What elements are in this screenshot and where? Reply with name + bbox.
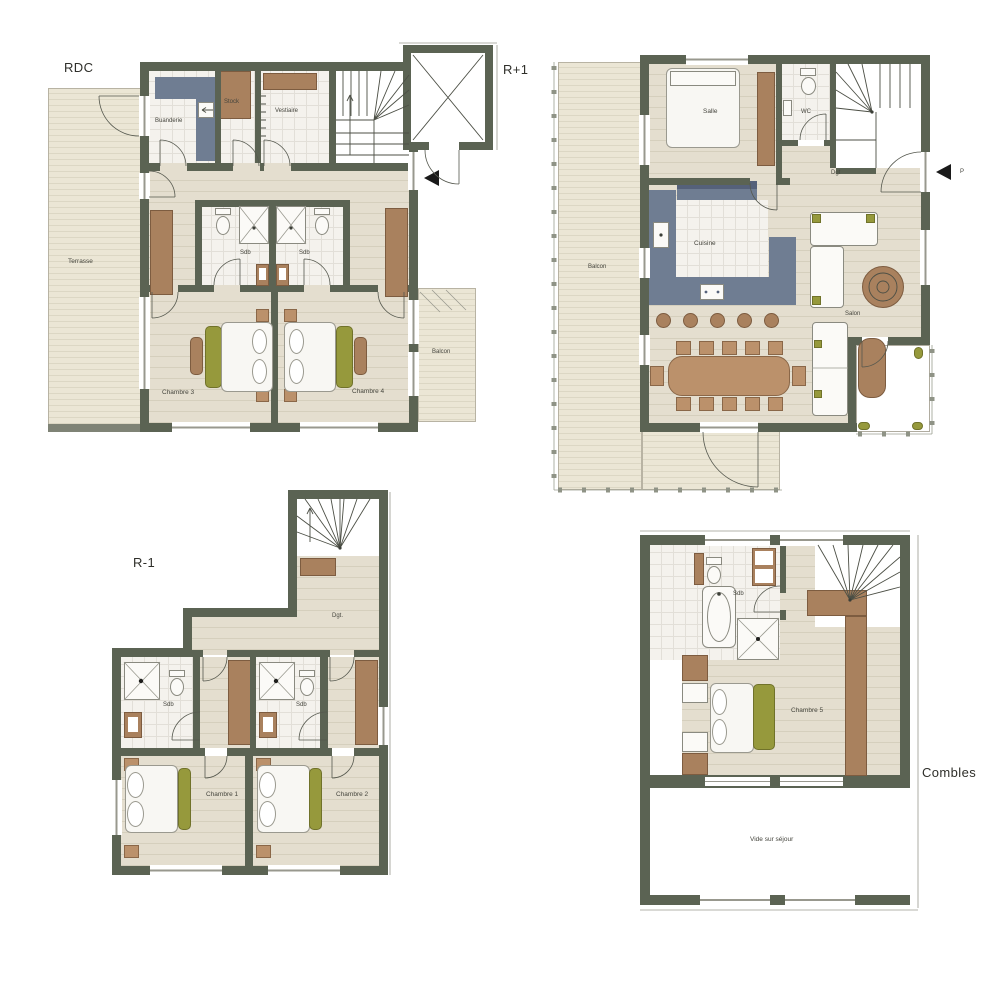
wall bbox=[329, 62, 336, 163]
r1-cuisine-floor bbox=[676, 200, 768, 277]
armchair bbox=[354, 337, 367, 375]
room-label-balcon-r1: Balcon bbox=[588, 264, 606, 270]
wall bbox=[215, 62, 221, 163]
door-opening bbox=[139, 173, 150, 199]
window-opening bbox=[705, 534, 770, 546]
entrance-arrow-icon bbox=[936, 164, 951, 180]
room-label-chambre2: Chambre 2 bbox=[336, 791, 368, 798]
door-opening bbox=[639, 115, 650, 165]
wall bbox=[140, 62, 418, 71]
room-label-vestiaire: Vestiaire bbox=[275, 108, 298, 114]
pillow bbox=[670, 71, 736, 86]
wall bbox=[640, 55, 649, 432]
rm1-stairs-floor bbox=[297, 499, 379, 556]
stair-banister bbox=[807, 590, 867, 616]
room-label-chambre3: Chambre 3 bbox=[162, 389, 194, 396]
room-label-wc: WC bbox=[801, 109, 811, 115]
elevator-cab bbox=[411, 53, 485, 142]
wall bbox=[245, 756, 253, 866]
wardrobe bbox=[757, 72, 775, 166]
door-opening bbox=[160, 163, 187, 171]
wardrobe bbox=[228, 660, 252, 745]
cooktop bbox=[700, 284, 724, 300]
bar-stool bbox=[737, 313, 752, 328]
room-label-sdb-combles: Sdb bbox=[733, 591, 744, 597]
cabinet bbox=[694, 553, 704, 585]
door-opening bbox=[700, 422, 758, 433]
stair-landing bbox=[300, 558, 336, 576]
sofa-cushion bbox=[812, 296, 821, 305]
cabinet bbox=[682, 753, 708, 775]
wardrobe bbox=[355, 660, 378, 745]
nightstand bbox=[682, 732, 708, 752]
sink bbox=[128, 717, 138, 732]
dining-chair bbox=[768, 341, 783, 355]
pillow bbox=[712, 689, 727, 715]
toilet bbox=[801, 77, 816, 95]
dining-chair bbox=[676, 397, 691, 411]
dining-chair bbox=[650, 366, 664, 386]
ottoman bbox=[858, 338, 886, 398]
room-label-sdb2-rm1: Sdb bbox=[296, 702, 307, 708]
wall bbox=[195, 200, 202, 292]
window-opening bbox=[920, 230, 931, 285]
combles-eaves bbox=[650, 660, 682, 775]
chaise-cushion bbox=[814, 340, 822, 348]
shower bbox=[259, 662, 295, 700]
wall bbox=[824, 140, 836, 146]
wall bbox=[640, 55, 930, 64]
room-label-sdb2: Sdb bbox=[299, 250, 310, 256]
wall bbox=[777, 178, 790, 185]
door-opening bbox=[639, 335, 650, 365]
window-opening bbox=[172, 422, 250, 433]
pillow bbox=[712, 719, 727, 745]
chaise bbox=[812, 322, 848, 416]
door-opening bbox=[639, 248, 650, 278]
nightstand bbox=[256, 845, 271, 858]
room-label-chambre4: Chambre 4 bbox=[352, 388, 384, 395]
room-label-balcon-rdc: Balcon bbox=[432, 349, 450, 355]
r1-balcon-deck bbox=[558, 62, 642, 490]
window-opening bbox=[780, 534, 843, 546]
window-opening bbox=[686, 54, 748, 65]
wall bbox=[269, 200, 276, 292]
elevator-wall bbox=[485, 45, 493, 150]
window-opening bbox=[150, 865, 222, 876]
elevator-wall bbox=[403, 45, 493, 53]
wardrobe bbox=[385, 208, 408, 297]
door-opening bbox=[139, 96, 150, 136]
wall bbox=[227, 650, 330, 657]
toilet bbox=[706, 557, 722, 565]
armchair bbox=[190, 337, 203, 375]
rdc-terrasse-edge bbox=[48, 424, 143, 432]
dining-chair bbox=[699, 341, 714, 355]
window-opening bbox=[268, 865, 340, 876]
toilet bbox=[314, 208, 330, 215]
dining-chair bbox=[745, 341, 760, 355]
wardrobe bbox=[845, 616, 867, 776]
dining-chair bbox=[768, 397, 783, 411]
dining-chair bbox=[722, 397, 737, 411]
sink bbox=[783, 100, 792, 116]
wall bbox=[112, 648, 192, 657]
plan-title-rdc: RDC bbox=[64, 60, 93, 75]
wall bbox=[921, 55, 930, 345]
pillow bbox=[252, 329, 267, 354]
r1-stairs-floor bbox=[836, 64, 921, 168]
window-opening bbox=[785, 894, 855, 906]
wall bbox=[354, 650, 379, 657]
wall bbox=[848, 337, 856, 432]
pillow bbox=[259, 801, 276, 827]
glass-partition bbox=[780, 777, 843, 786]
nightstand bbox=[682, 683, 708, 703]
wall bbox=[193, 657, 200, 748]
elevator-wall bbox=[459, 142, 493, 150]
room-label-vide: Vide sur séjour bbox=[750, 836, 793, 843]
door-opening bbox=[304, 285, 330, 292]
kitchen-counter bbox=[769, 237, 796, 305]
bar-stool bbox=[710, 313, 725, 328]
wall bbox=[112, 648, 121, 875]
pillow bbox=[289, 359, 304, 384]
toilet bbox=[707, 566, 721, 584]
bed-bench bbox=[753, 684, 775, 750]
bed-bench bbox=[309, 768, 322, 830]
bed-bench bbox=[205, 326, 222, 388]
wall bbox=[354, 748, 379, 756]
toilet bbox=[215, 208, 231, 215]
plant bbox=[858, 422, 870, 430]
wall bbox=[192, 650, 203, 657]
rdc-stock-closet bbox=[219, 71, 251, 119]
room-label-stock: Stock bbox=[224, 99, 239, 105]
pillow bbox=[252, 359, 267, 384]
plant bbox=[914, 347, 923, 359]
r1-balcon-deck bbox=[642, 430, 780, 490]
bed-bench bbox=[178, 768, 191, 830]
wall bbox=[650, 775, 900, 788]
wall bbox=[640, 535, 650, 905]
rdc-terrasse-deck bbox=[48, 88, 143, 432]
bar-stool bbox=[656, 313, 671, 328]
wall bbox=[121, 748, 205, 756]
window-opening bbox=[408, 352, 419, 396]
wall bbox=[649, 178, 750, 185]
window-opening bbox=[408, 300, 419, 344]
wall bbox=[780, 610, 786, 620]
bar-stool bbox=[764, 313, 779, 328]
room-label-dgt-rm1: Dgt. bbox=[332, 613, 343, 619]
room-label-terrasse: Terrasse bbox=[68, 258, 93, 265]
wall bbox=[900, 535, 910, 788]
window-opening bbox=[111, 780, 122, 835]
rdc-laundry-counter bbox=[155, 77, 217, 99]
dining-table bbox=[668, 356, 790, 396]
sink bbox=[755, 551, 773, 565]
shower bbox=[239, 206, 269, 244]
toilet bbox=[170, 678, 184, 696]
nightstand bbox=[124, 845, 139, 858]
dining-chair bbox=[745, 397, 760, 411]
toilet bbox=[800, 68, 816, 76]
wall bbox=[776, 64, 782, 185]
wall bbox=[250, 657, 256, 748]
toilet bbox=[169, 670, 185, 677]
dining-chair bbox=[792, 366, 806, 386]
window-opening bbox=[300, 422, 378, 433]
wall bbox=[640, 895, 910, 905]
nightstand bbox=[284, 309, 297, 322]
wall bbox=[830, 64, 836, 168]
room-label-sdb1: Sdb bbox=[240, 250, 251, 256]
room-label-dgt-r1: Dgt bbox=[831, 170, 840, 176]
sofa-cushion bbox=[812, 214, 821, 223]
wall bbox=[343, 200, 350, 292]
bathtub-basin bbox=[707, 592, 731, 642]
room-label-salon: Salon bbox=[845, 311, 860, 317]
room-label-chambre5: Chambre 5 bbox=[791, 707, 823, 714]
wall bbox=[288, 490, 388, 499]
window-opening bbox=[378, 707, 389, 745]
plan-title-combles: Combles bbox=[922, 765, 976, 780]
wall bbox=[288, 490, 297, 617]
toilet bbox=[300, 678, 314, 696]
bed-bench bbox=[336, 326, 353, 388]
shower bbox=[124, 662, 160, 700]
plan-title-r1: R+1 bbox=[503, 62, 528, 77]
room-label-cuisine: Cuisine bbox=[694, 240, 716, 247]
shower bbox=[276, 206, 306, 244]
door-opening bbox=[214, 285, 240, 292]
toilet bbox=[315, 216, 329, 235]
glass-partition bbox=[705, 777, 770, 786]
dining-chair bbox=[722, 341, 737, 355]
floorplan-sheet: RDC R+1 R-1 Combles Terrasse Buanderie S… bbox=[0, 0, 1000, 1000]
entrance-arrow-icon bbox=[424, 170, 439, 186]
room-label-sdb1-rm1: Sdb bbox=[163, 702, 174, 708]
door-opening bbox=[233, 163, 260, 171]
sink bbox=[755, 569, 773, 583]
kitchen-sink bbox=[653, 222, 669, 248]
wall bbox=[227, 748, 332, 756]
rdc-balcon-deck bbox=[418, 288, 476, 422]
sink bbox=[259, 268, 266, 280]
window-opening bbox=[139, 297, 150, 389]
kitchen-counter bbox=[677, 189, 757, 200]
bar-stool bbox=[683, 313, 698, 328]
window-opening bbox=[700, 894, 770, 906]
pillow bbox=[127, 801, 144, 827]
wall bbox=[780, 545, 786, 593]
pillow bbox=[259, 772, 276, 798]
wardrobe bbox=[150, 210, 173, 295]
wardrobe bbox=[682, 655, 708, 681]
entrance-label: P bbox=[960, 169, 964, 175]
plan-title-rm1: R-1 bbox=[133, 555, 155, 570]
room-label-buanderie: Buanderie bbox=[155, 118, 182, 124]
rdc-washer bbox=[198, 102, 214, 118]
plant bbox=[912, 422, 923, 430]
dining-chair bbox=[699, 397, 714, 411]
chaise-cushion bbox=[814, 390, 822, 398]
door-opening bbox=[264, 163, 291, 171]
elevator-wall bbox=[403, 45, 411, 150]
wall bbox=[836, 168, 876, 174]
wall bbox=[320, 657, 328, 748]
shower bbox=[737, 618, 779, 660]
sink bbox=[263, 717, 273, 732]
door-opening bbox=[408, 152, 419, 190]
pillow bbox=[127, 772, 144, 798]
wall bbox=[183, 608, 297, 617]
nightstand bbox=[256, 309, 269, 322]
sink bbox=[279, 268, 286, 280]
toilet bbox=[216, 216, 230, 235]
room-label-salle: Salle bbox=[703, 108, 717, 115]
dining-chair bbox=[676, 341, 691, 355]
wall bbox=[776, 140, 798, 146]
wall bbox=[640, 535, 910, 545]
pouf bbox=[862, 266, 904, 308]
wall bbox=[255, 62, 261, 163]
wall bbox=[379, 490, 388, 875]
toilet bbox=[299, 670, 315, 677]
pillow bbox=[289, 329, 304, 354]
room-label-chambre1: Chambre 1 bbox=[206, 791, 238, 798]
door-opening bbox=[920, 152, 931, 192]
elevator-wall bbox=[403, 142, 429, 150]
rdc-stairs-floor bbox=[334, 71, 409, 165]
sofa-cushion bbox=[866, 214, 875, 223]
door-opening bbox=[798, 140, 824, 146]
rdc-vestiaire-bench bbox=[263, 73, 317, 90]
